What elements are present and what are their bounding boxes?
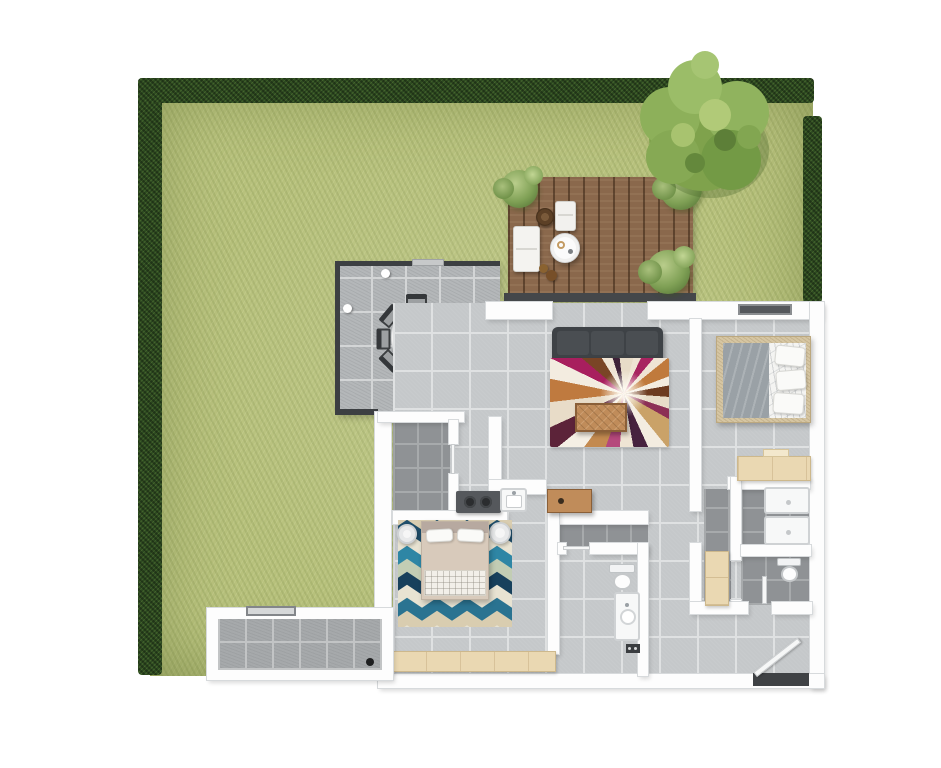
deck-table-decor-dot — [568, 249, 573, 254]
floor-plan-scene — [0, 0, 941, 768]
master-bed — [421, 521, 489, 600]
bath-mat-dot — [628, 647, 631, 650]
bathroom-vanity — [614, 592, 640, 641]
wall-entrance-north-right — [772, 602, 812, 614]
kitchen-faucet — [512, 491, 516, 495]
sideboard — [547, 489, 592, 513]
closet-cabinet — [705, 551, 729, 606]
outdoor-sofa-seam — [516, 248, 537, 250]
sofa-cushion — [557, 331, 589, 355]
outdoor-sofa — [513, 226, 540, 272]
hedge-left — [138, 78, 162, 675]
vanity-sink — [620, 609, 636, 625]
toilet-bowl — [613, 573, 632, 590]
lounge-chair — [555, 201, 576, 231]
vanity-faucet — [625, 603, 629, 607]
garden-tree — [625, 45, 785, 213]
kitchen-floor — [393, 419, 450, 517]
patio-fence-left — [335, 261, 340, 415]
master-pillow — [426, 528, 454, 542]
bedroom2-pillow — [775, 369, 807, 392]
master-long-dresser — [391, 651, 556, 672]
deck-threshold — [504, 293, 696, 302]
sideboard-decor — [558, 498, 564, 504]
deck-table-decor-ring — [557, 241, 565, 249]
rattan-chair — [536, 208, 554, 226]
shower-tray — [764, 487, 810, 514]
wall-closet-divider — [731, 477, 741, 560]
dining-chair — [377, 329, 391, 350]
bedroom2-bed — [716, 336, 811, 423]
shower-tray — [764, 516, 810, 545]
patio-light-dot — [343, 304, 352, 313]
deck-plant — [646, 250, 690, 294]
side-stool-large — [546, 270, 557, 281]
toilet2-bowl — [781, 566, 798, 582]
deck-plant — [500, 170, 538, 208]
lounge-chair-seam — [558, 214, 573, 216]
coffee-table — [575, 403, 627, 432]
bedroom2-pillow — [772, 392, 804, 415]
toilet-room-door-leaf — [762, 576, 767, 604]
annex-floor — [218, 619, 382, 670]
wall-hall-upper — [690, 319, 701, 511]
annex-floor-drain — [366, 658, 374, 666]
kitchen-sink — [506, 495, 522, 508]
kitchen-door-leaf — [451, 444, 455, 474]
nightstand-right — [489, 522, 511, 544]
burner — [480, 496, 492, 508]
shower-drain — [786, 530, 791, 535]
annex-window-sill — [246, 606, 296, 616]
master-foot-blanket — [424, 570, 486, 596]
wall-north-left — [486, 302, 552, 319]
bath-mat — [626, 644, 640, 653]
nightstand-left — [397, 524, 417, 544]
patio-gate — [412, 259, 444, 266]
bedroom2-dresser — [737, 456, 811, 481]
master-pillow — [457, 528, 485, 542]
burner — [464, 496, 476, 508]
wall-hall-lower — [690, 543, 701, 608]
bathroom-door-leaf — [563, 546, 590, 550]
wall-kitchen-east-upper — [449, 420, 458, 444]
bedroom2-dresser-notch — [763, 449, 789, 457]
wall-master-east — [548, 511, 559, 654]
toilet2-tank — [777, 558, 801, 566]
sink-counter — [500, 488, 527, 512]
hedge-right — [803, 116, 822, 303]
sofa-cushion — [626, 331, 658, 355]
bedroom2-blanket — [723, 343, 773, 418]
deck-round-table — [550, 233, 580, 263]
toilet-tank — [609, 564, 635, 573]
patio-light-dot — [381, 269, 390, 278]
entry-threshold — [753, 673, 809, 686]
patio-fence-bottom — [335, 409, 378, 415]
shower-drain — [786, 500, 791, 505]
bedroom2-pillow — [774, 344, 806, 367]
wall-north-right — [648, 302, 822, 319]
bedroom-window-sill — [738, 304, 792, 315]
wall-east — [810, 302, 824, 688]
sofa-cushion — [591, 331, 623, 355]
bath-mat-dot — [634, 647, 637, 650]
cooktop-counter — [456, 491, 501, 513]
wall-bath2-mid — [741, 545, 811, 556]
